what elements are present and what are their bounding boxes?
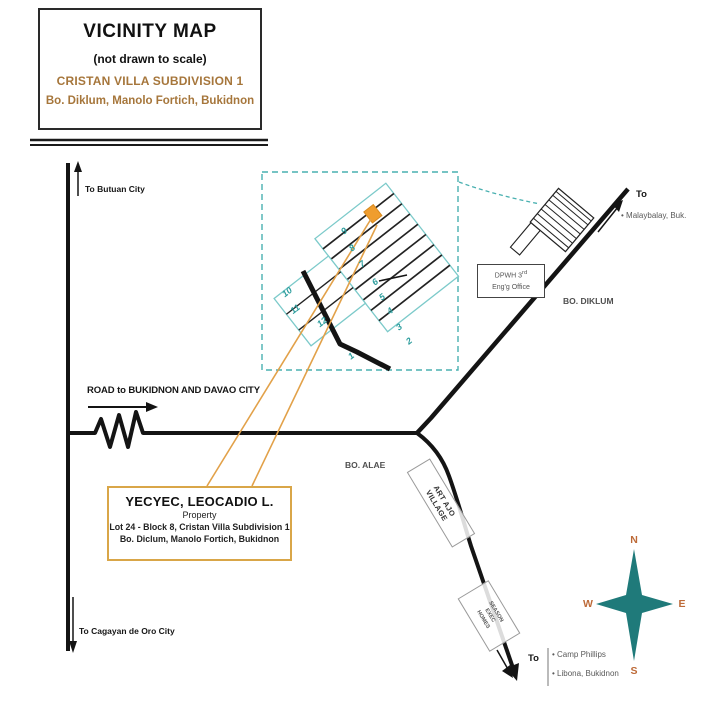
compass-west: W <box>583 598 593 610</box>
label-libona: • Libona, Bukidnon <box>552 670 619 679</box>
compass-north: N <box>630 534 638 546</box>
compass-star <box>596 549 673 661</box>
property-address: Bo. Diclum, Manolo Fortich, Bukidnon <box>109 534 290 544</box>
label-malaybalay: • Malaybalay, Buk. <box>621 212 686 221</box>
label-to-northeast: To <box>636 190 647 200</box>
compass-east: E <box>678 598 685 610</box>
building-annex <box>510 223 540 255</box>
page-title: VICINITY MAP <box>40 21 260 43</box>
dpwh-office-box: DPWH 3rd Eng'g Office <box>477 264 545 298</box>
road-to-malaybalay <box>417 189 628 433</box>
road-label-arrow-head <box>146 402 158 412</box>
label-main-road: ROAD to BUKIDNON AND DAVAO CITY <box>87 386 260 396</box>
inset-leader-line <box>459 182 540 204</box>
property-info-box: YECYEC, LEOCADIO L. Property Lot 24 - Bl… <box>107 486 292 561</box>
subdivision-name: CRISTAN VILLA SUBDIVISION 1 <box>40 74 260 88</box>
scale-note: (not drawn to scale) <box>40 52 260 66</box>
dpwh-line2: Eng'g Office <box>478 282 544 294</box>
vicinity-map: VICINITY MAP (not drawn to scale) CRISTA… <box>0 0 720 720</box>
label-bo-alae: BO. ALAE <box>345 461 385 470</box>
south-arrow-head <box>69 641 77 653</box>
label-to-butuan: To Butuan City <box>85 185 145 194</box>
north-arrow-head <box>74 161 82 172</box>
subdivision-location: Bo. Diklum, Manolo Fortich, Bukidnon <box>40 95 260 107</box>
label-bo-diklum: BO. DIKLUM <box>563 297 614 306</box>
property-lot-info: Lot 24 - Block 8, Cristan Villa Subdivis… <box>109 522 290 532</box>
dpwh-building <box>510 188 594 276</box>
label-camp-phillips: • Camp Phillips <box>552 651 606 660</box>
property-type: Property <box>109 510 290 520</box>
property-owner: YECYEC, LEOCADIO L. <box>109 494 290 509</box>
compass-south: S <box>630 665 637 677</box>
dpwh-line1: DPWH 3rd <box>478 269 544 282</box>
label-to-cagayan: To Cagayan de Oro City <box>79 627 175 636</box>
title-box: VICINITY MAP (not drawn to scale) CRISTA… <box>38 8 262 130</box>
label-to-south: To <box>528 654 539 664</box>
dpwh-ordinal: rd <box>522 270 527 276</box>
subdivision-plan <box>261 183 459 374</box>
